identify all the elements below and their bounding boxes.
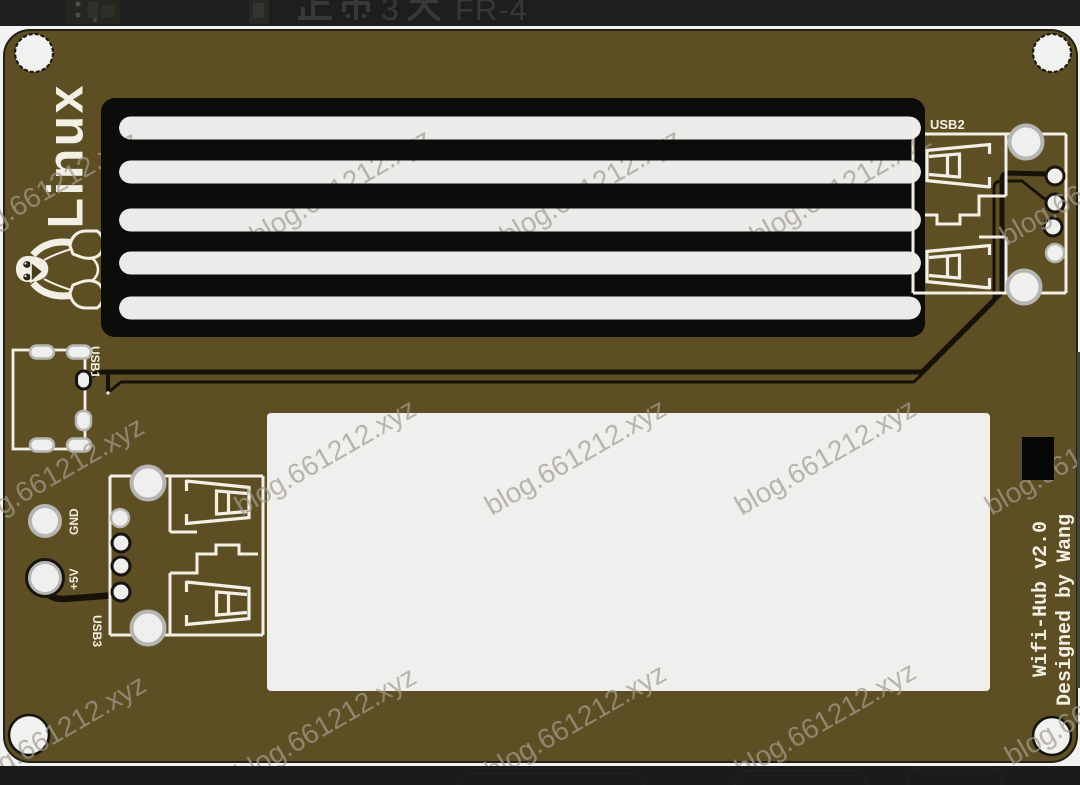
svg-text:+5V: +5V — [67, 568, 81, 590]
svg-text:USB3: USB3 — [90, 615, 104, 647]
svg-text:FR-4: FR-4 — [455, 0, 528, 27]
svg-text:Wifi-Hub v2.0: Wifi-Hub v2.0 — [1030, 521, 1053, 677]
svg-text:USB2: USB2 — [930, 117, 965, 132]
svg-text:GND: GND — [67, 508, 81, 535]
svg-text:3: 3 — [381, 0, 399, 27]
svg-text:Designed by Wang: Designed by Wang — [1054, 514, 1077, 706]
